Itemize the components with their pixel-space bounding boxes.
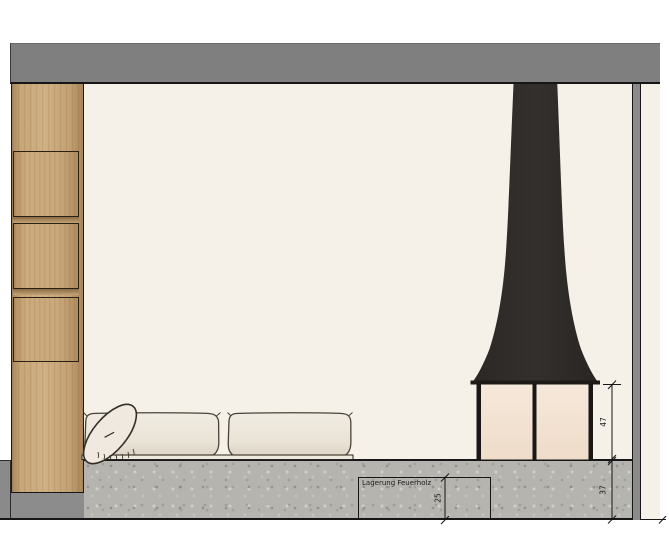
room-background [84,84,633,460]
shelf-plinth-cut [11,492,84,520]
elevation-canvas: Lagerung Feuerholz [0,0,669,557]
right-wall-outer-face [641,84,660,520]
shelf-board [13,289,79,295]
left-floor-slab-cut [0,460,11,520]
shelf-compartment-3 [13,297,79,362]
right-wall-cut [632,84,641,520]
ceiling-beam [10,43,660,84]
shelf-compartment-1 [13,151,79,217]
firewood-storage-outline: Lagerung Feuerholz [358,477,491,520]
shelf-compartment-2 [13,223,79,289]
wood-shelf-unit [11,84,84,492]
firewood-storage-label: Lagerung Feuerholz [362,479,431,487]
